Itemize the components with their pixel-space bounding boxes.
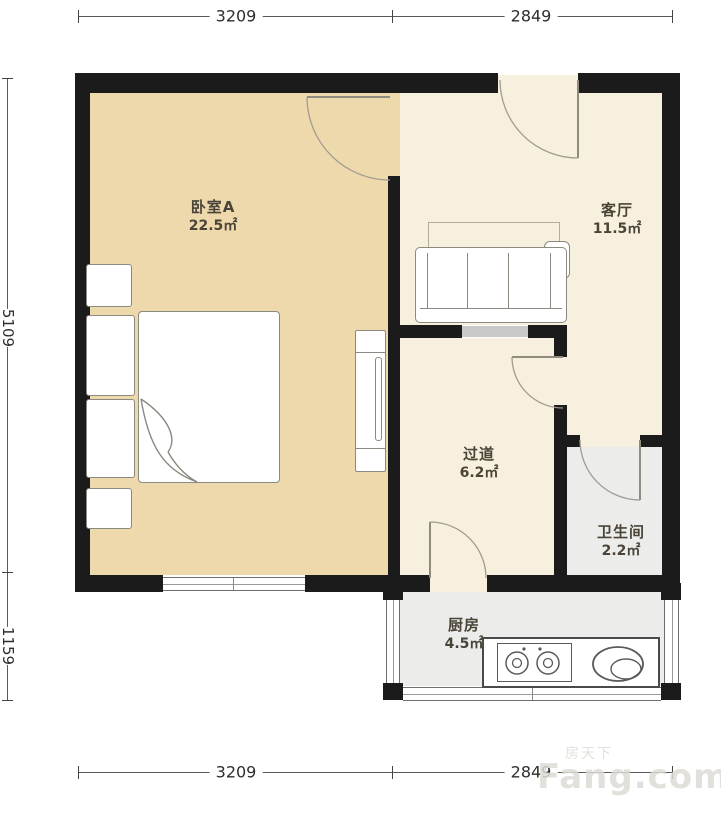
line-art-overlay bbox=[0, 0, 721, 814]
floorplan-canvas: 3209 2849 3209 2849 5109 1159 bbox=[0, 0, 721, 814]
bathroom-door-arc bbox=[580, 440, 640, 500]
hallway-label: 过道 6.2㎡ bbox=[414, 444, 544, 482]
sink-icon bbox=[593, 647, 643, 681]
living-room-label: 客厅 11.5㎡ bbox=[552, 200, 682, 238]
kitchen-door-arc bbox=[430, 522, 486, 578]
bathroom-area: 2.2㎡ bbox=[556, 542, 686, 560]
bedroom-label: 卧室A 22.5㎡ bbox=[148, 197, 278, 235]
bedroom-name: 卧室A bbox=[148, 197, 278, 217]
bed-fold-curl bbox=[168, 452, 197, 482]
living-room-name: 客厅 bbox=[552, 200, 682, 220]
stove-knob-dot bbox=[538, 647, 541, 650]
living-room-area: 11.5㎡ bbox=[552, 220, 682, 238]
hallway-door-arc bbox=[512, 357, 563, 408]
bedroom-area: 22.5㎡ bbox=[148, 217, 278, 235]
burner-right-icon bbox=[537, 652, 559, 674]
burner-left-icon bbox=[506, 652, 528, 674]
bedroom-door-arc bbox=[307, 97, 390, 180]
entrance-door-arc bbox=[500, 80, 578, 158]
bed-fold-curl bbox=[141, 399, 197, 482]
watermark-brand-en: Fang.com bbox=[537, 760, 721, 794]
hallway-name: 过道 bbox=[414, 444, 544, 464]
kitchen-area: 4.5㎡ bbox=[399, 635, 529, 653]
kitchen-label: 厨房 4.5㎡ bbox=[399, 615, 529, 653]
bathroom-name: 卫生间 bbox=[556, 522, 686, 542]
bed-fold-curl bbox=[141, 399, 172, 452]
bathroom-label: 卫生间 2.2㎡ bbox=[556, 522, 686, 560]
hallway-area: 6.2㎡ bbox=[414, 464, 544, 482]
kitchen-name: 厨房 bbox=[399, 615, 529, 635]
